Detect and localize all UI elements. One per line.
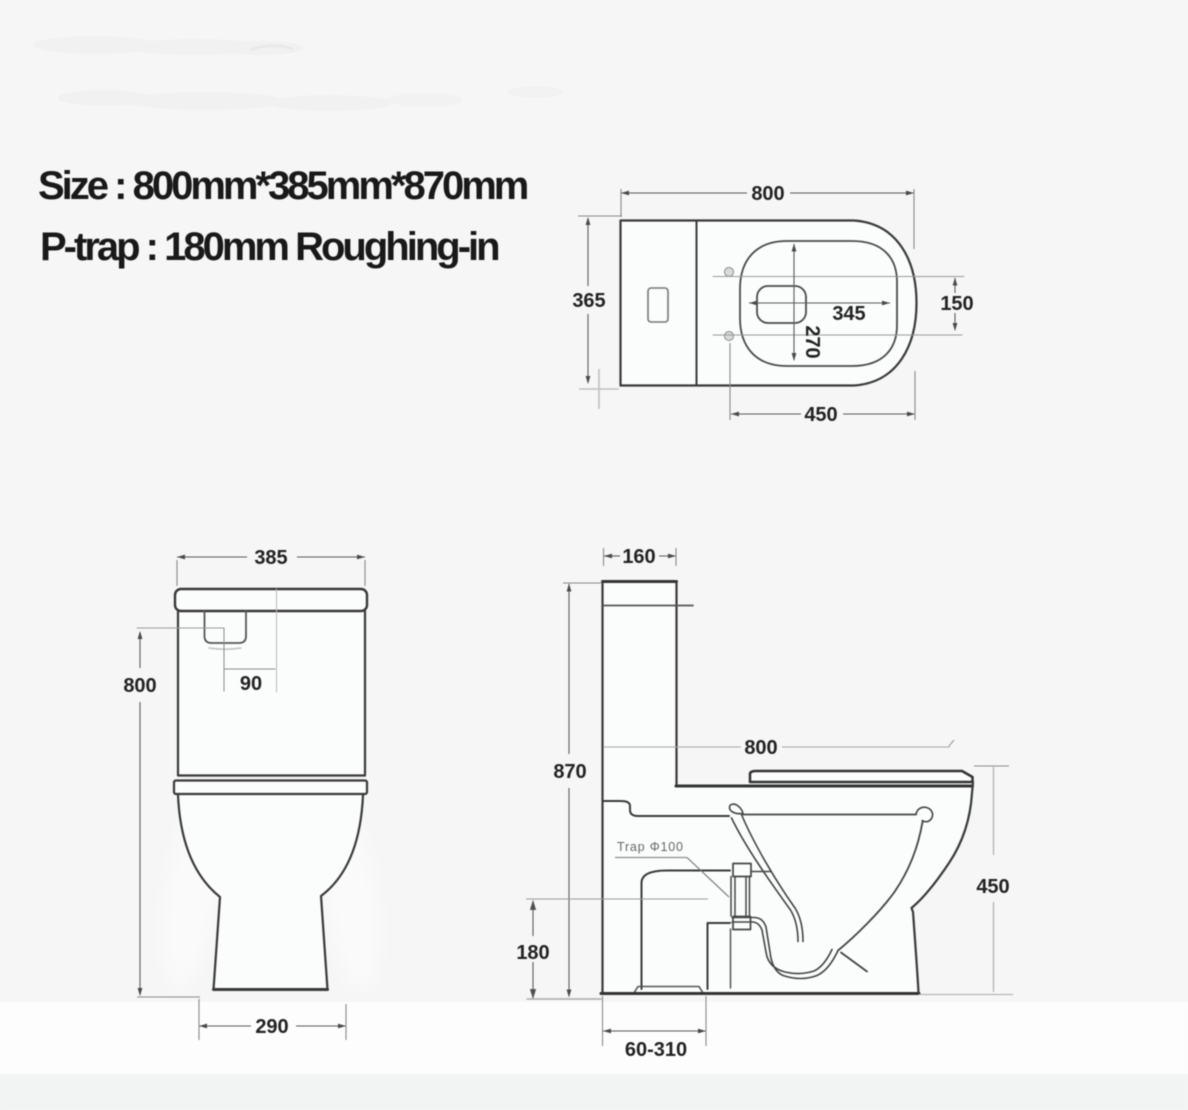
svg-text:160: 160 — [622, 546, 655, 568]
svg-text:150: 150 — [940, 293, 973, 315]
svg-text:450: 450 — [804, 404, 837, 426]
svg-text:180: 180 — [516, 942, 549, 964]
svg-text:800: 800 — [123, 675, 156, 697]
svg-text:290: 290 — [255, 1016, 288, 1038]
svg-text:345: 345 — [832, 303, 865, 325]
svg-text:P-trap : 180mm Roughing-in: P-trap : 180mm Roughing-in — [40, 225, 498, 269]
svg-text:800: 800 — [744, 737, 777, 759]
svg-text:800: 800 — [751, 183, 784, 205]
svg-text:270: 270 — [801, 325, 823, 358]
svg-text:Size : 800mm*385mm*870mm: Size : 800mm*385mm*870mm — [38, 164, 528, 208]
svg-text:450: 450 — [976, 876, 1009, 898]
svg-text:385: 385 — [254, 547, 287, 569]
svg-text:870: 870 — [553, 761, 586, 783]
svg-text:365: 365 — [572, 290, 605, 312]
svg-text:Trap Φ100: Trap Φ100 — [617, 840, 684, 854]
svg-text:90: 90 — [240, 673, 262, 695]
svg-text:60-310: 60-310 — [625, 1039, 687, 1061]
